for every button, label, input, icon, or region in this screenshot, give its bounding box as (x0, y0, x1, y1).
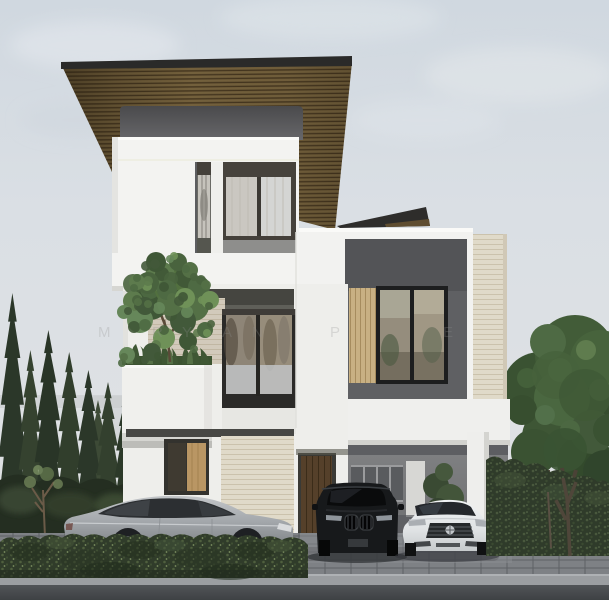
svg-text:M: M (98, 324, 111, 341)
svg-text:N: N (252, 324, 263, 341)
svg-text:Y: Y (182, 324, 192, 341)
svg-text:R: R (152, 324, 163, 341)
svg-text:P: P (330, 324, 340, 341)
svg-text:E: E (443, 324, 453, 341)
svg-text:A: A (222, 324, 232, 341)
